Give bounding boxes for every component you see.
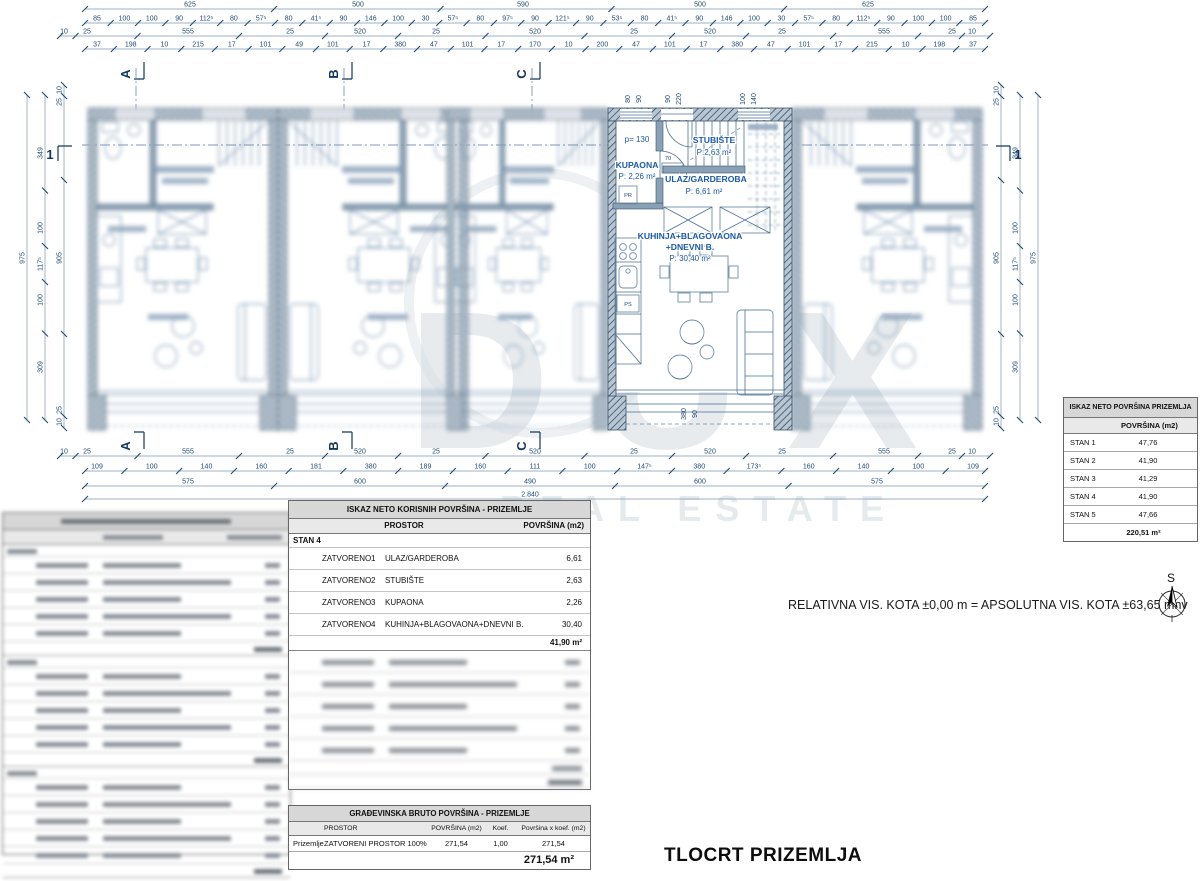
blurred-row	[3, 557, 290, 574]
dim-label: 160	[803, 464, 815, 471]
table-row: STAN 5 47,66	[1064, 506, 1197, 524]
row-apartment: STAN 2	[1070, 452, 1096, 469]
dim-label: 80	[625, 95, 632, 103]
dim-label: 101	[462, 42, 474, 49]
row-number: 1	[371, 548, 375, 569]
dim-label: 590	[517, 2, 529, 9]
row-type: ZATVORENO	[322, 570, 371, 591]
dim-label: 100	[1013, 294, 1020, 306]
dim-label: 85	[93, 16, 101, 23]
dim-label: 37	[93, 42, 101, 49]
dim-label: 17	[497, 42, 505, 49]
dim-label: 80	[476, 16, 484, 23]
dim-label: 25	[286, 449, 294, 456]
pr-label: PR	[624, 193, 632, 199]
elevation-note: RELATIVNA VIS. KOTA ±0,00 m = APSOLUTNA …	[788, 598, 1188, 612]
dim-label: 112⁵	[199, 16, 213, 23]
dim-label: 380	[731, 42, 743, 49]
room-label-ulaz: ULAZ/GARDEROBA	[665, 174, 747, 184]
dim-label: 90	[636, 95, 643, 103]
dim-label: 200	[597, 42, 609, 49]
row-type: ZATVORENO	[322, 548, 371, 569]
room-area-stubiste: P:2,63 m²	[697, 148, 732, 157]
table-row: ZATVORENO 2 STUBIŠTE 2,63	[289, 570, 590, 592]
summary-table-col: POVRŠINA (m2)	[1121, 421, 1178, 430]
row-area-value: 41,90	[1122, 452, 1174, 469]
dim-label: 140	[751, 93, 758, 105]
dim-label: 349	[38, 147, 45, 159]
dim-label: 100	[912, 16, 924, 23]
row-type: ZATVORENO	[322, 614, 371, 635]
dim-label: 215	[866, 42, 878, 49]
row-number: 3	[371, 592, 375, 613]
dim-label: 600	[694, 479, 706, 486]
dim-label: 146	[365, 16, 377, 23]
dim-label: 100	[38, 222, 45, 234]
blurred-row	[3, 591, 290, 608]
dim-label: 181	[310, 464, 322, 471]
dim-label: 10	[60, 449, 68, 456]
dim-label: 147⁵	[637, 464, 652, 471]
net-table-section-stan4: STAN 4	[289, 534, 590, 548]
summary-areas-table: ISKAZ NETO POVRŠINA PRIZEMLJA POVRŠINA (…	[1063, 397, 1198, 542]
dim-label: 109	[967, 464, 979, 471]
ps-label: PS	[624, 302, 632, 308]
gross-table-header: PROSTOR POVRŠINA (m2) Koef. Površina x k…	[289, 822, 590, 836]
net-table-blurred-section	[289, 651, 590, 789]
dim-label: 146	[721, 16, 733, 23]
dim-label: 100	[146, 464, 158, 471]
row-area-value: 41,29	[1122, 470, 1174, 487]
dim-label: 198	[933, 42, 945, 49]
dim-label: 121⁵	[555, 16, 570, 23]
dim-label: 25	[630, 449, 638, 456]
dim-label: 2.840	[521, 492, 539, 499]
blurred-section-rows	[3, 779, 290, 864]
room-area-ulaz: P: 6,61 m²	[686, 187, 723, 196]
dim-label: 25	[432, 449, 440, 456]
blurred-units	[88, 108, 982, 430]
dim-label: 90	[175, 16, 183, 23]
dim-label: 25	[286, 29, 294, 36]
row-area-value: 2,63	[566, 570, 582, 591]
dimension-strips: 6255005905006258510010090112⁵8057⁵8041⁵9…	[20, 2, 1042, 503]
dim-label: 173⁵	[747, 464, 762, 471]
svg-text:B: B	[326, 441, 341, 450]
row-room-name: KUHINJA+BLAGOVAONA+DNEVNI B.	[385, 614, 524, 635]
dim-label: 25	[57, 406, 64, 414]
dim-label: 25	[948, 29, 956, 36]
row-area: 271,54	[429, 836, 484, 851]
dim-label: 309	[1013, 361, 1020, 373]
dim-label: 555	[878, 29, 890, 36]
dim-label: 975	[1031, 252, 1038, 264]
net-table-col-prostor: PROSTOR	[349, 521, 459, 530]
row-number: 2	[371, 570, 375, 591]
dim-label: 625	[184, 2, 196, 9]
net-table-total: 41,90 m²	[289, 636, 590, 651]
dim-label: 80	[230, 16, 238, 23]
dim-label: 100	[119, 16, 131, 23]
dim-label: 10	[994, 418, 1001, 426]
dim-label: 100	[912, 464, 924, 471]
unit-stan4: 70 215	[608, 108, 792, 430]
dim-label: 100	[146, 16, 158, 23]
dim-label: 47	[767, 42, 775, 49]
blurred-row	[289, 739, 590, 761]
dim-label: 520	[704, 449, 716, 456]
row-area-value: 47,76	[1122, 434, 1174, 451]
gross-area-table: GRAĐEVINSKA BRUTO POVRŠINA - PRIZEMLJE P…	[288, 805, 591, 870]
room-label-kupaona-p: p= 130	[625, 135, 650, 144]
dim-label: 215	[192, 42, 204, 49]
row-apartment: STAN 1	[1070, 434, 1096, 451]
net-table-rows: ZATVORENO 1 ULAZ/GARDEROBA 6,61 ZATVOREN…	[289, 548, 590, 636]
dim-label: 101	[260, 42, 272, 49]
section-marker-b-bottom: B	[326, 432, 352, 451]
dim-label: 555	[878, 449, 890, 456]
row-type: ZATVORENO	[322, 592, 371, 613]
svg-text:C: C	[514, 69, 529, 79]
dim-label: 25	[630, 29, 638, 36]
compass-needle-dark	[1167, 586, 1172, 607]
dim-label: 57⁵	[803, 16, 814, 23]
dim-label: 41⁵	[311, 16, 322, 23]
dim-label: 160	[255, 464, 267, 471]
row-number: 4	[371, 614, 375, 635]
dim-label: 85	[969, 16, 977, 23]
dim-label: 555	[182, 29, 194, 36]
dim-label: 10	[994, 86, 1001, 94]
gross-col-povrsina-koef: Površina x koef. (m2)	[517, 822, 590, 835]
dim-label: 80	[832, 16, 840, 23]
dim-label: 575	[182, 479, 194, 486]
blurred-row	[3, 685, 290, 702]
summary-table-total: 220,51 m²	[1064, 524, 1197, 541]
dim-label: 198	[125, 42, 137, 49]
dim-label: 520	[529, 29, 541, 36]
dim-label: 220	[676, 93, 683, 105]
dim-label: 600	[354, 479, 366, 486]
dim-label: 17	[834, 42, 842, 49]
dim-label: 140	[858, 464, 870, 471]
dim-label: 30	[422, 16, 430, 23]
blurred-section-rows	[3, 557, 290, 642]
dim-label: 100	[392, 16, 404, 23]
dim-label: 380	[681, 408, 688, 420]
dim-label: 17	[363, 42, 371, 49]
blurred-row	[3, 796, 290, 813]
dim-label: 100	[38, 294, 45, 306]
svg-text:C: C	[514, 441, 529, 451]
dim-label: 37	[969, 42, 977, 49]
svg-text:1: 1	[46, 147, 53, 162]
dim-label: 380	[394, 42, 406, 49]
dim-label: 520	[354, 29, 366, 36]
blurred-row	[3, 702, 290, 719]
dim-label: 625	[862, 2, 874, 9]
blueprint-page: DUX REAL ESTATE	[0, 0, 1200, 881]
row-apartment: STAN 4	[1070, 488, 1096, 505]
room-area-kuhinja: P: 30,40 m²	[669, 254, 711, 263]
row-area-value: 6,61	[566, 548, 582, 569]
row-area-value: 41,90	[1122, 488, 1174, 505]
blurred-row	[3, 779, 290, 796]
row-level: Prizemlje	[289, 836, 324, 851]
room-label-stubiste: STUBIŠTE	[693, 134, 736, 145]
dim-label: 17	[228, 42, 236, 49]
dim-label: 905	[994, 252, 1001, 264]
blurred-row	[289, 695, 590, 717]
dim-label: 101	[327, 42, 339, 49]
room-area-kupaona: P: 2,26 m²	[619, 172, 656, 181]
dim-label: 25	[994, 406, 1001, 414]
dim-label: 101	[664, 42, 676, 49]
gross-col-prostor: PROSTOR	[324, 822, 429, 835]
door-width-label: 70	[665, 156, 671, 162]
dim-label: 49	[295, 42, 303, 49]
dim-label: 100	[584, 464, 596, 471]
dim-label: 10	[565, 42, 573, 49]
blurred-row	[289, 651, 590, 673]
blurred-section-rows	[3, 668, 290, 753]
dim-label: 100	[1013, 222, 1020, 234]
dim-label: 53⁵	[612, 16, 623, 23]
dim-label: 25	[432, 29, 440, 36]
row-space-name: ZATVORENI PROSTOR 100%	[324, 836, 429, 851]
dim-label: 25	[778, 29, 786, 36]
section-marker-b-top: B	[326, 62, 352, 79]
dim-label: 109	[91, 464, 103, 471]
blurred-row	[3, 847, 290, 864]
row-area-value: 2,26	[566, 592, 582, 613]
blurred-row	[3, 719, 290, 736]
table-row: ZATVORENO 4 KUHINJA+BLAGOVAONA+DNEVNI B.…	[289, 614, 590, 636]
dim-label: 100	[740, 93, 747, 105]
dim-label: 41⁵	[667, 16, 678, 23]
table-row: STAN 1 47,76	[1064, 434, 1197, 452]
dim-label: 111	[530, 464, 541, 471]
dim-label: 47	[632, 42, 640, 49]
table-row: ZATVORENO 1 ULAZ/GARDEROBA 6,61	[289, 548, 590, 570]
dim-label: 90	[695, 16, 703, 23]
row-room-name: STUBIŠTE	[385, 570, 424, 591]
gross-table-total: 271,54 m²	[289, 852, 590, 869]
dim-label: 90	[586, 16, 594, 23]
section-marker-1-right: 1	[996, 146, 1022, 162]
dim-label: 25	[778, 449, 786, 456]
svg-text:A: A	[118, 441, 133, 451]
dim-label: 100	[748, 16, 760, 23]
dim-label: 490	[524, 479, 536, 486]
blurred-table-header	[3, 530, 290, 545]
blurred-row	[3, 736, 290, 753]
row-room-name: KUPAONA	[385, 592, 424, 613]
blurred-row	[289, 717, 590, 739]
dim-label: 112⁵	[856, 16, 870, 23]
blurred-row	[289, 673, 590, 695]
svg-text:B: B	[326, 69, 341, 78]
dim-label: 25	[83, 29, 91, 36]
svg-text:1: 1	[1014, 147, 1021, 162]
dim-label: 10	[57, 418, 64, 426]
row-room-name: ULAZ/GARDEROBA	[385, 548, 459, 569]
blurred-row	[3, 813, 290, 830]
dim-label: 380	[693, 464, 705, 471]
dim-label: 10	[968, 449, 976, 456]
page-title: TLOCRT PRIZEMLJA	[648, 845, 878, 867]
dim-label: 90	[887, 16, 895, 23]
row-area-koef: 271,54	[517, 836, 590, 851]
room-label-kupaona: KUPAONA	[616, 160, 659, 170]
table-row: STAN 4 41,90	[1064, 488, 1197, 506]
table-row: ZATVORENO 3 KUPAONA 2,26	[289, 592, 590, 614]
dim-label: 520	[529, 449, 541, 456]
section-marker-c-top: C	[514, 62, 540, 79]
blurred-table-title	[3, 513, 290, 530]
dim-label: 160	[474, 464, 486, 471]
row-area-value: 30,40	[562, 614, 582, 635]
net-table-title: ISKAZ NETO KORISNIH POVRŠINA - PRIZEMLJE	[289, 501, 590, 519]
dim-label: 905	[57, 252, 64, 264]
dim-label: 30	[777, 16, 785, 23]
dim-label: 117⁵	[1013, 257, 1020, 271]
compass-label: S	[1167, 571, 1175, 585]
left-apartments-table-blurred	[2, 512, 291, 855]
dim-label: 90	[665, 95, 672, 103]
row-koef: 1,00	[484, 836, 517, 851]
dim-label: 100	[940, 16, 952, 23]
dim-label: 140	[201, 464, 213, 471]
floor-plan: 6255005905006258510010090112⁵8057⁵8041⁵9…	[0, 0, 1050, 510]
dim-label: 555	[182, 449, 194, 456]
summary-table-title: ISKAZ NETO POVRŠINA PRIZEMLJA	[1064, 398, 1197, 418]
compass-needle-light	[1172, 586, 1177, 607]
gross-table-row: Prizemlje ZATVORENI PROSTOR 100% 271,54 …	[289, 836, 590, 852]
dim-label: 117⁵	[38, 257, 45, 271]
dim-label: 57⁵	[448, 16, 459, 23]
dim-label: 97⁵	[502, 16, 513, 23]
dim-label: 10	[57, 86, 64, 94]
table-row: STAN 3 41,29	[1064, 470, 1197, 488]
dim-label: 10	[60, 29, 68, 36]
summary-table-header: POVRŠINA (m2)	[1064, 418, 1197, 434]
dim-label: 10	[902, 42, 910, 49]
room-label-kuhinja-2: +DNEVNI B.	[666, 242, 714, 252]
dim-label: 380	[365, 464, 377, 471]
summary-table-rows: STAN 1 47,76 STAN 2 41,90 STAN 3 41,29 S…	[1064, 434, 1197, 524]
blurred-table-body	[3, 545, 290, 878]
section-marker-1-left: 1	[46, 146, 72, 162]
table-row: STAN 2 41,90	[1064, 452, 1197, 470]
dim-label: 500	[694, 2, 706, 9]
dim-label: 975	[20, 252, 27, 264]
blurred-row	[3, 668, 290, 685]
row-apartment: STAN 5	[1070, 506, 1096, 523]
section-marker-a-top: A	[118, 62, 144, 79]
dim-label: 25	[994, 98, 1001, 106]
dim-label: 80	[285, 16, 293, 23]
dim-label: 17	[700, 42, 708, 49]
north-arrow: S	[1150, 570, 1196, 628]
dim-label: 101	[799, 42, 811, 49]
dim-label: 25	[83, 449, 91, 456]
net-table-col-povrsina: POVRŠINA (m2)	[523, 521, 584, 530]
room-label-kuhinja-1: KUHINJA+BLAGOVAONA	[638, 231, 743, 241]
row-apartment: STAN 3	[1070, 470, 1096, 487]
dim-label: 90	[692, 410, 699, 418]
gross-col-povrsina: POVRŠINA (m2)	[429, 822, 484, 835]
net-table-header: PROSTOR POVRŠINA (m2)	[289, 519, 590, 534]
dim-label: 47	[430, 42, 438, 49]
dim-label: 90	[339, 16, 347, 23]
dim-label: 170	[529, 42, 541, 49]
gross-table-title: GRAĐEVINSKA BRUTO POVRŠINA - PRIZEMLJE	[289, 806, 590, 822]
gross-col-koef: Koef.	[484, 822, 517, 835]
dim-label: 90	[531, 16, 539, 23]
dim-label: 575	[871, 479, 883, 486]
dim-label: 309	[38, 361, 45, 373]
section-marker-a-bottom: A	[118, 432, 144, 451]
svg-text:A: A	[118, 69, 133, 79]
dim-label: 10	[160, 42, 168, 49]
dim-label: 80	[641, 16, 649, 23]
blurred-row	[3, 830, 290, 847]
dim-label: 500	[352, 2, 364, 9]
dim-label: 520	[354, 449, 366, 456]
row-area-value: 47,66	[1122, 506, 1174, 523]
dim-label: 10	[968, 29, 976, 36]
dim-label: 520	[704, 29, 716, 36]
dim-label: 25	[948, 449, 956, 456]
blurred-row	[3, 608, 290, 625]
blurred-row	[3, 574, 290, 591]
dim-label: 57⁵	[256, 16, 267, 23]
dim-label: 189	[420, 464, 432, 471]
blurred-row	[3, 625, 290, 642]
dim-label: 25	[57, 98, 64, 106]
net-areas-table: ISKAZ NETO KORISNIH POVRŠINA - PRIZEMLJE…	[288, 500, 591, 790]
